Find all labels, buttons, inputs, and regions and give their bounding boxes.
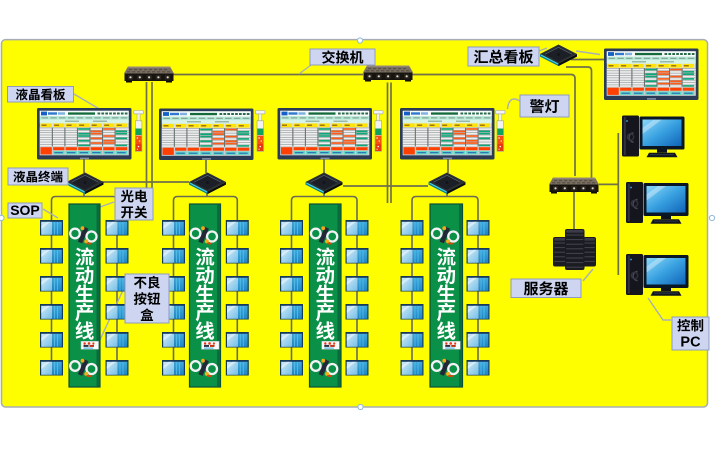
svg-text:SOP: SOP bbox=[10, 202, 40, 218]
svg-text:PC: PC bbox=[680, 335, 701, 351]
